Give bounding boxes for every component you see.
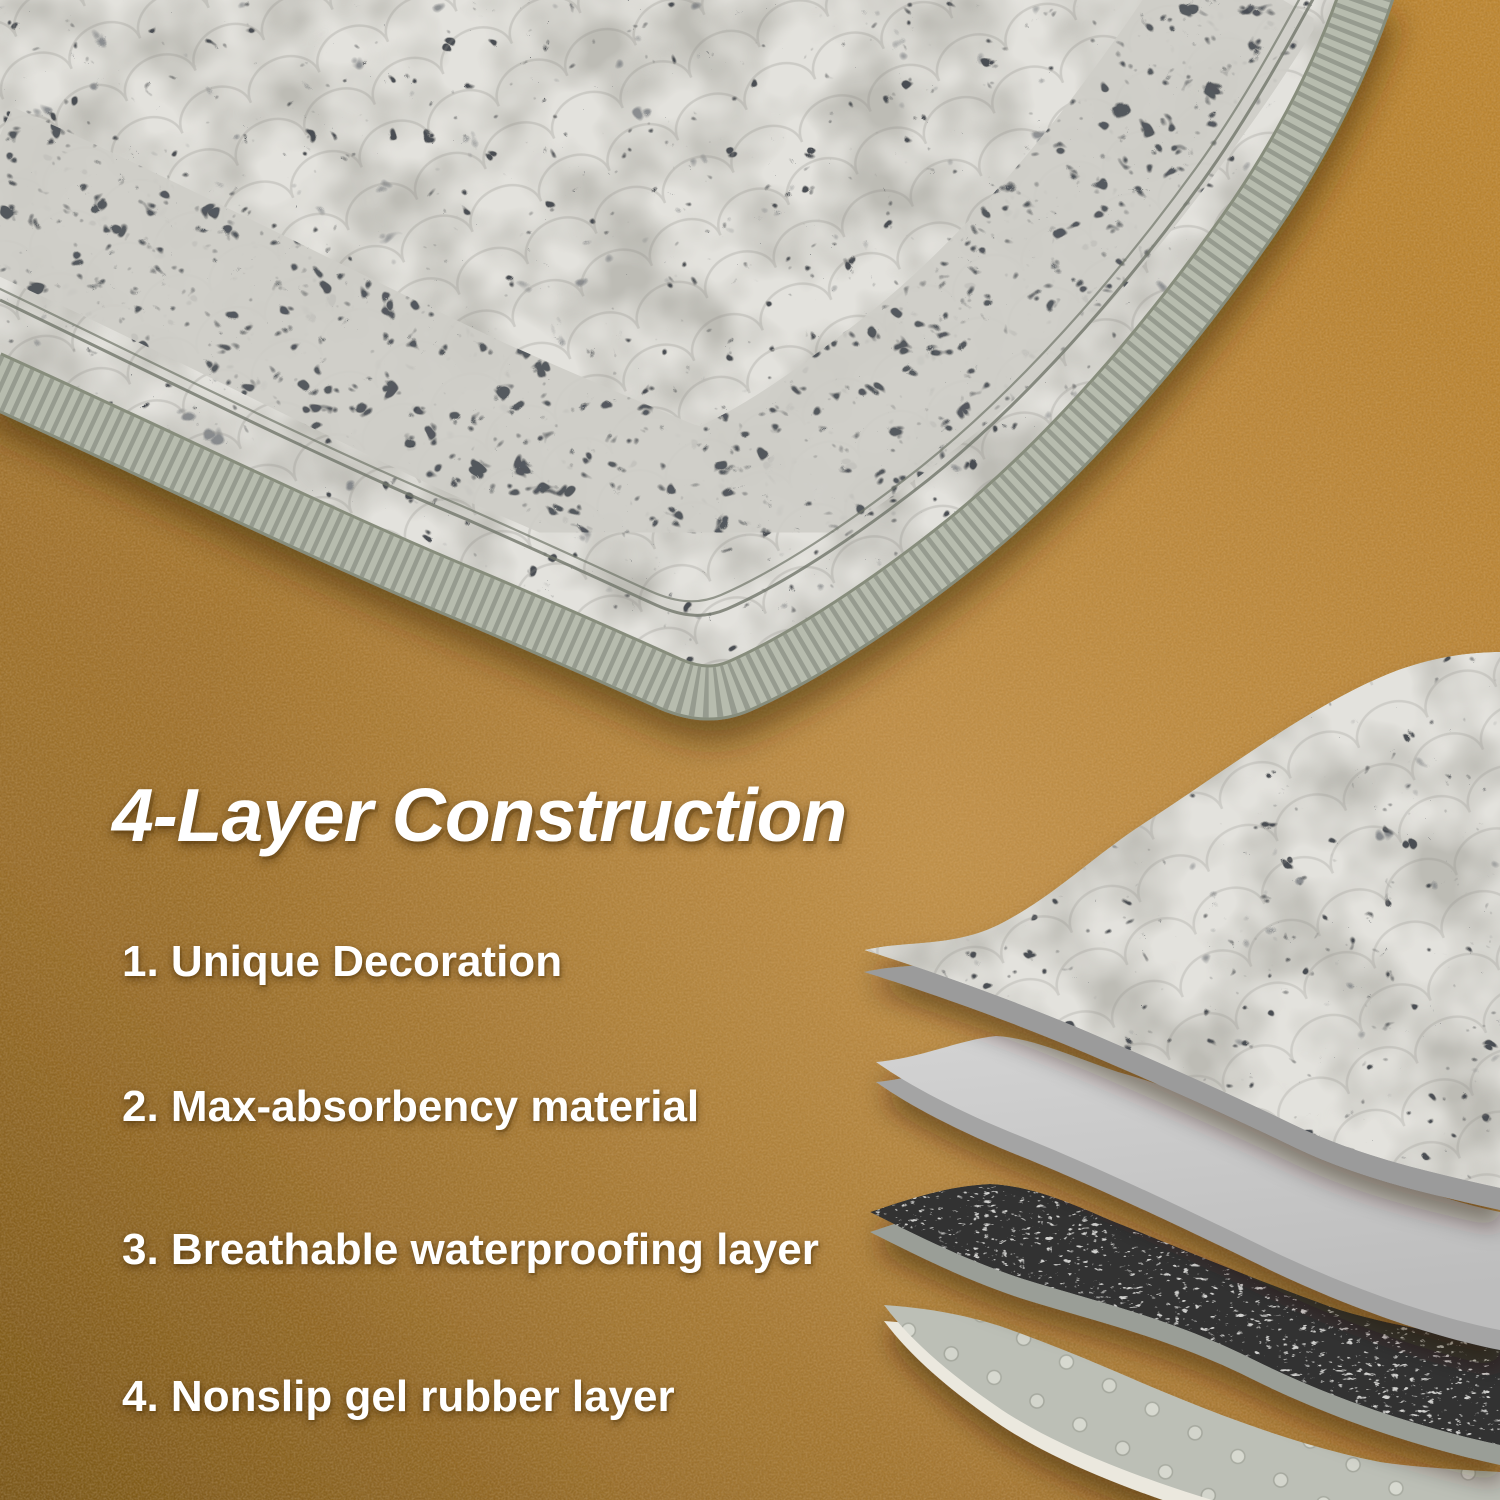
feature-item-4: 4. Nonslip gel rubber layer [122,1372,675,1422]
feature-item-3: 3. Breathable waterproofing layer [122,1225,819,1275]
feature-item-2: 2. Max-absorbency material [122,1082,699,1132]
feature-item-1: 1. Unique Decoration [122,937,562,987]
scene-illustration [0,0,1500,1500]
headline-title: 4-Layer Construction [112,772,846,858]
product-infographic: 4-Layer Construction 1. Unique Decoratio… [0,0,1500,1500]
